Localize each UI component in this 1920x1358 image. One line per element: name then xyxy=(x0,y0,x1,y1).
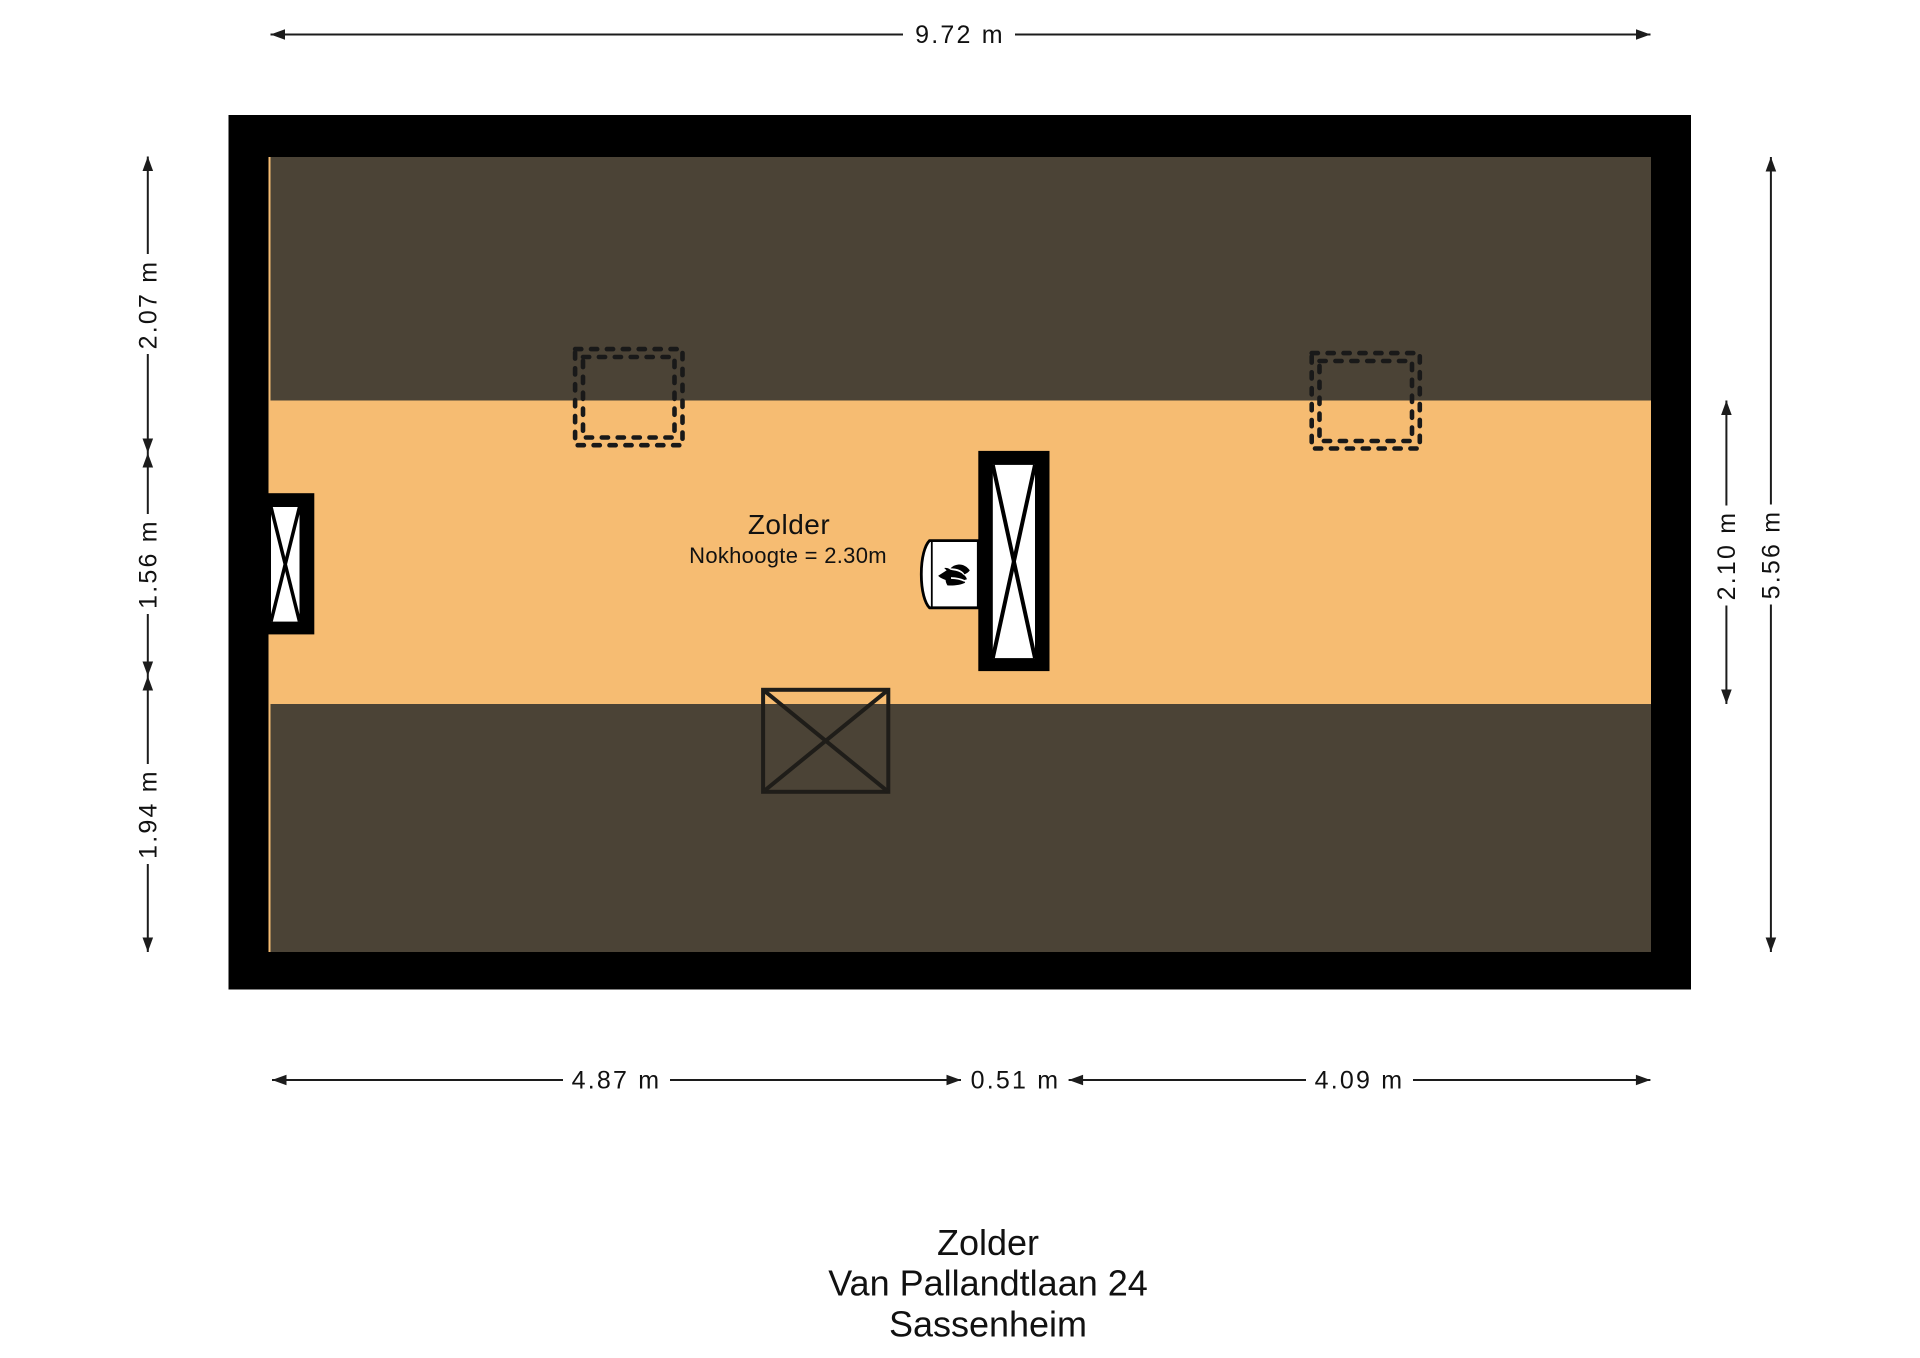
svg-text:9.72 m: 9.72 m xyxy=(915,21,1005,49)
svg-text:4.87 m: 4.87 m xyxy=(572,1067,662,1095)
svg-text:Van Pallandtlaan 24: Van Pallandtlaan 24 xyxy=(828,1263,1148,1304)
svg-text:1.94 m: 1.94 m xyxy=(134,769,162,859)
svg-text:Nokhoogte = 2.30m: Nokhoogte = 2.30m xyxy=(689,543,887,568)
svg-text:4.09 m: 4.09 m xyxy=(1315,1067,1405,1095)
svg-text:Zolder: Zolder xyxy=(937,1222,1039,1263)
svg-text:0.51 m: 0.51 m xyxy=(971,1067,1061,1095)
svg-text:Sassenheim: Sassenheim xyxy=(889,1303,1087,1344)
svg-text:Zolder: Zolder xyxy=(748,509,830,540)
svg-text:2.10 m: 2.10 m xyxy=(1713,511,1741,601)
svg-text:1.56 m: 1.56 m xyxy=(134,519,162,609)
svg-text:2.07 m: 2.07 m xyxy=(134,260,162,350)
svg-text:5.56 m: 5.56 m xyxy=(1757,510,1785,600)
